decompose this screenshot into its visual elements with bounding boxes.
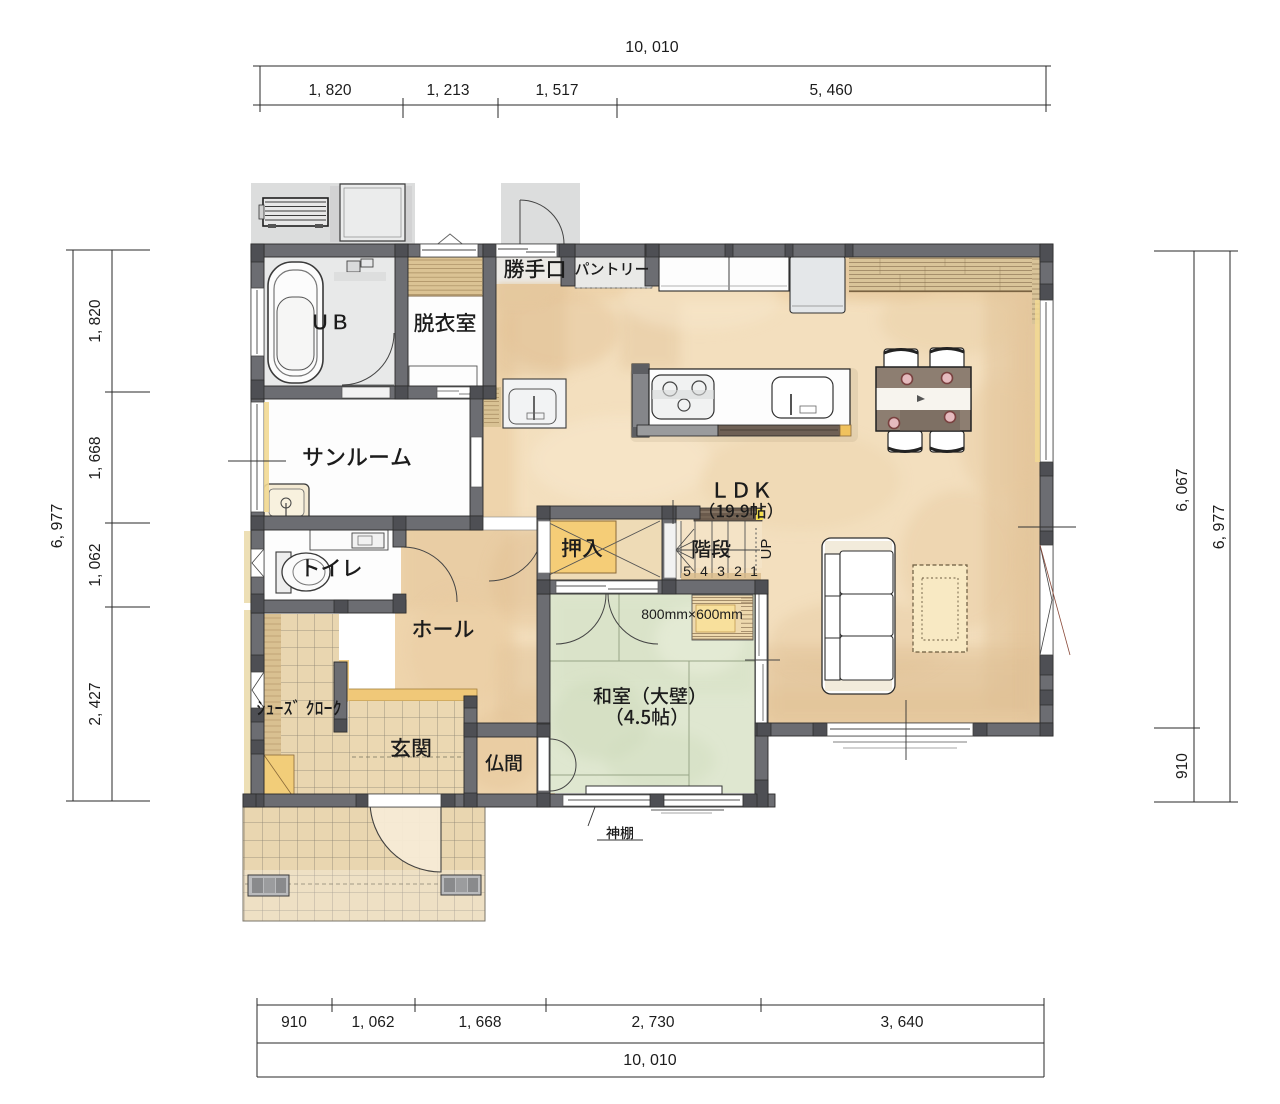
svg-text:1, 213: 1, 213 (426, 82, 469, 99)
svg-text:1, 062: 1, 062 (87, 543, 104, 586)
svg-text:10, 010: 10, 010 (623, 1052, 676, 1069)
svg-text:10, 010: 10, 010 (625, 39, 678, 56)
svg-text:5, 460: 5, 460 (809, 82, 852, 99)
svg-text:1, 820: 1, 820 (308, 82, 351, 99)
svg-text:910: 910 (1174, 753, 1191, 779)
svg-text:3: 3 (717, 563, 725, 579)
svg-text:UP: UP (758, 539, 775, 560)
svg-text:1, 668: 1, 668 (458, 1014, 501, 1031)
svg-text:4: 4 (700, 563, 708, 579)
svg-text:1: 1 (750, 563, 758, 579)
svg-text:1, 820: 1, 820 (87, 299, 104, 342)
svg-text:2, 730: 2, 730 (631, 1014, 674, 1031)
svg-text:6, 977: 6, 977 (49, 504, 66, 549)
svg-text:1, 517: 1, 517 (535, 82, 578, 99)
svg-text:1, 062: 1, 062 (351, 1014, 394, 1031)
svg-text:6, 977: 6, 977 (1211, 505, 1228, 550)
svg-text:1, 668: 1, 668 (87, 436, 104, 479)
svg-text:2, 427: 2, 427 (87, 682, 104, 725)
svg-text:910: 910 (281, 1014, 307, 1031)
svg-text:2: 2 (734, 563, 742, 579)
svg-text:6, 067: 6, 067 (1174, 468, 1191, 511)
svg-text:800mm×600mm: 800mm×600mm (641, 606, 743, 622)
svg-text:3, 640: 3, 640 (880, 1014, 923, 1031)
svg-text:5: 5 (683, 563, 691, 579)
